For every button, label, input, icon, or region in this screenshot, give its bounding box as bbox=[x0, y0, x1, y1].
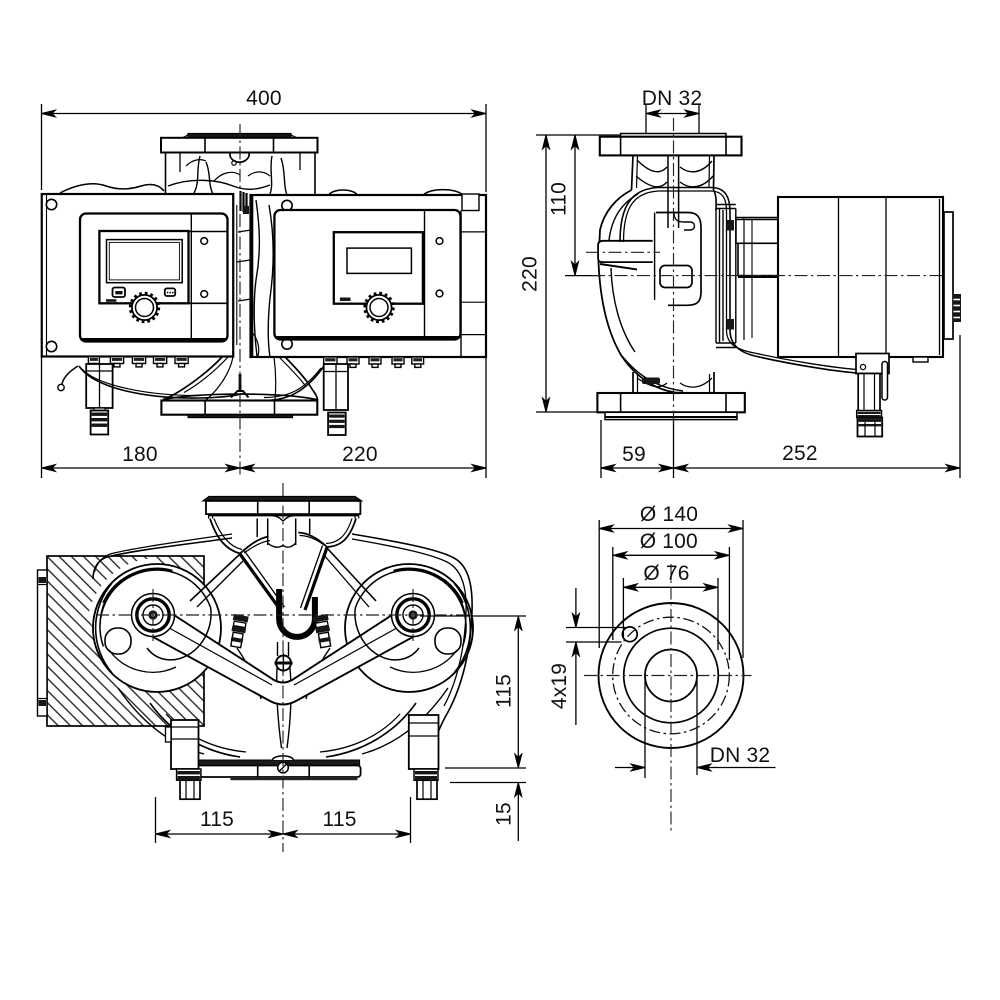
svg-text:252: 252 bbox=[782, 442, 818, 465]
svg-text:DN 32: DN 32 bbox=[642, 87, 703, 110]
svg-text:Ø 140: Ø 140 bbox=[640, 503, 698, 526]
svg-text:4x19: 4x19 bbox=[548, 663, 571, 709]
svg-text:Ø 100: Ø 100 bbox=[640, 530, 698, 553]
svg-text:59: 59 bbox=[622, 443, 646, 466]
svg-text:110: 110 bbox=[548, 182, 571, 216]
svg-text:15: 15 bbox=[493, 802, 516, 826]
svg-text:180: 180 bbox=[122, 443, 158, 466]
svg-text:220: 220 bbox=[342, 443, 378, 466]
svg-text:115: 115 bbox=[323, 808, 357, 831]
svg-text:Ø 76: Ø 76 bbox=[643, 562, 689, 585]
svg-text:400: 400 bbox=[246, 87, 282, 110]
svg-text:220: 220 bbox=[519, 256, 542, 292]
svg-text:DN 32: DN 32 bbox=[710, 744, 771, 767]
svg-text:115: 115 bbox=[493, 674, 516, 708]
svg-text:115: 115 bbox=[200, 808, 234, 831]
